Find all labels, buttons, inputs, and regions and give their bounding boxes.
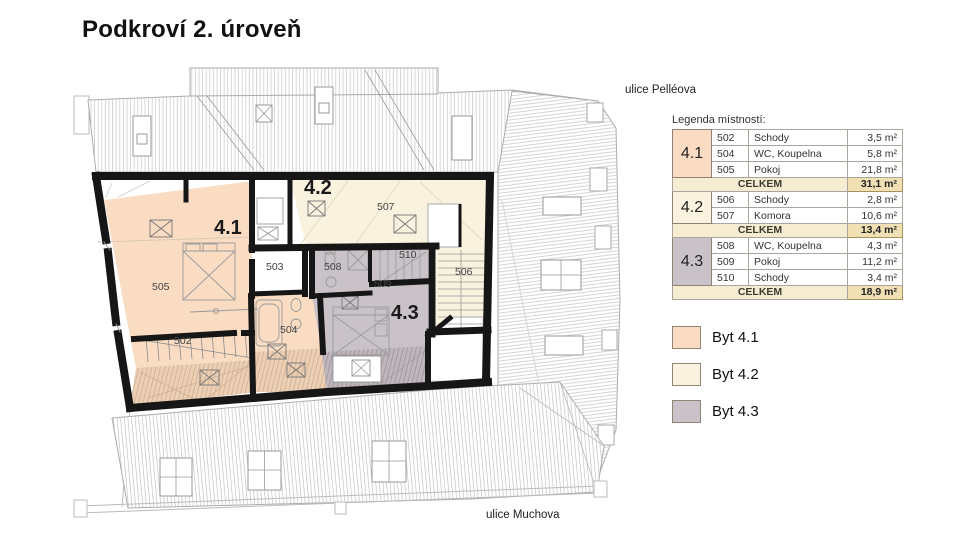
apartment-key-row: Byt 4.2	[672, 362, 759, 386]
room-name-cell: Komora	[749, 208, 848, 224]
room-name-cell: Schody	[749, 270, 848, 286]
apartment-color-swatch	[672, 400, 701, 423]
room-name-cell: Pokoj	[749, 162, 848, 178]
total-value-cell: 18,9 m²	[848, 286, 903, 300]
room-label-503: 503	[266, 261, 284, 273]
legend-total-row: CELKEM31,1 m²	[673, 178, 903, 192]
legend-total-row: CELKEM13,4 m²	[673, 224, 903, 238]
apartment-key-row: Byt 4.3	[672, 399, 759, 423]
room-area-cell: 3,5 m²	[848, 130, 903, 146]
legend-total-row: CELKEM18,9 m²	[673, 286, 903, 300]
legend-table-body: 4.1502Schody3,5 m²504WC, Koupelna5,8 m²5…	[673, 130, 903, 300]
room-number-cell: 510	[712, 270, 749, 286]
room-area-cell: 3,4 m²	[848, 270, 903, 286]
room-area-cell: 2,8 m²	[848, 192, 903, 208]
room-number-cell: 508	[712, 238, 749, 254]
page-title: Podkroví 2. úroveň	[82, 16, 302, 44]
legend-title: Legenda místností:	[672, 114, 766, 126]
legend-table: 4.1502Schody3,5 m²504WC, Koupelna5,8 m²5…	[672, 129, 903, 300]
total-label-cell: CELKEM	[673, 178, 848, 192]
room-label-509: 509	[374, 278, 392, 290]
room-name-cell: Schody	[749, 130, 848, 146]
room-number-cell: 509	[712, 254, 749, 270]
room-label-504: 504	[280, 324, 298, 336]
total-value-cell: 31,1 m²	[848, 178, 903, 192]
apartment-color-swatch	[672, 363, 701, 386]
room-area-cell: 10,6 m²	[848, 208, 903, 224]
unit-label-4.1: 4.1	[214, 217, 242, 240]
apartment-id-cell: 4.2	[673, 192, 712, 224]
room-name-cell: Pokoj	[749, 254, 848, 270]
apartment-key-row: Byt 4.1	[672, 325, 759, 349]
total-label-cell: CELKEM	[673, 224, 848, 238]
apartment-key-label: Byt 4.1	[712, 329, 759, 346]
apartment-id-cell: 4.3	[673, 238, 712, 286]
room-number-cell: 505	[712, 162, 749, 178]
room-name-cell: WC, Koupelna	[749, 238, 848, 254]
total-label-cell: CELKEM	[673, 286, 848, 300]
room-area-cell: 5,8 m²	[848, 146, 903, 162]
room-number-cell: 506	[712, 192, 749, 208]
room-name-cell: Schody	[749, 192, 848, 208]
legend-room-row: 4.3508WC, Koupelna4,3 m²	[673, 238, 903, 254]
unit-label-4.3: 4.3	[391, 302, 419, 325]
street-label-pelleova: ulice Pelléova	[625, 84, 696, 96]
legend-room-row: 4.2506Schody2,8 m²	[673, 192, 903, 208]
street-label-muchova: ulice Muchova	[486, 509, 560, 521]
room-label-510: 510	[399, 249, 417, 261]
unit-label-4.2: 4.2	[304, 177, 332, 200]
room-label-507: 507	[377, 201, 395, 213]
room-area-cell: 11,2 m²	[848, 254, 903, 270]
room-number-cell: 504	[712, 146, 749, 162]
room-name-cell: WC, Koupelna	[749, 146, 848, 162]
legend-room-row: 4.1502Schody3,5 m²	[673, 130, 903, 146]
apartment-color-swatch	[672, 326, 701, 349]
apartment-key-label: Byt 4.2	[712, 366, 759, 383]
room-number-cell: 502	[712, 130, 749, 146]
room-area-cell: 4,3 m²	[848, 238, 903, 254]
apartment-id-cell: 4.1	[673, 130, 712, 178]
page: Podkroví 2. úroveň ulice Pelléova ulice …	[0, 0, 960, 540]
room-label-506: 506	[455, 266, 473, 278]
apartment-key: Byt 4.1Byt 4.2Byt 4.3	[672, 325, 759, 436]
room-label-505: 505	[152, 281, 170, 293]
room-area-cell: 21,8 m²	[848, 162, 903, 178]
room-label-502: 502	[174, 335, 192, 347]
room-number-cell: 507	[712, 208, 749, 224]
room-label-508: 508	[324, 261, 342, 273]
total-value-cell: 13,4 m²	[848, 224, 903, 238]
apartment-key-label: Byt 4.3	[712, 403, 759, 420]
